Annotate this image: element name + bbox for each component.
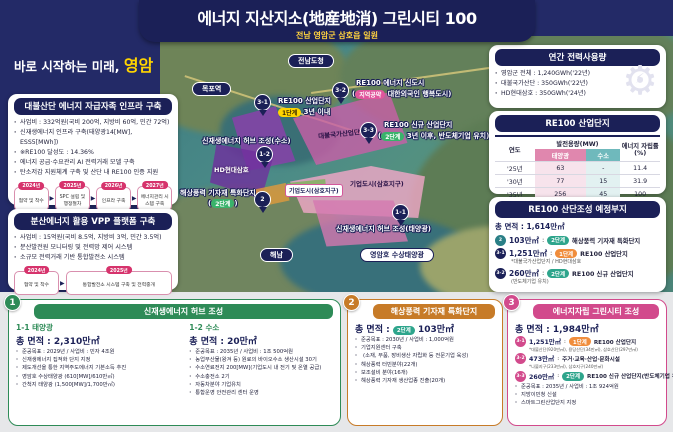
city-area: 1,251만㎡ bbox=[529, 337, 561, 346]
site-name: RE100 신규 산업단지 bbox=[572, 269, 633, 278]
bullet: 에너지 공급·수요관리 AI 전력거래 모델 구축 bbox=[14, 158, 172, 168]
tagline-text: 바로 시작하는 미래, bbox=[14, 59, 124, 74]
col-hydrogen: 수소 bbox=[586, 149, 620, 162]
title-bar: 에너지 지산지소(地産地消) 그린시티 100 전남 영암군 삼호읍 일원 bbox=[139, 0, 535, 42]
map-pill-lake-solar: 영암호 수상태양광 bbox=[360, 248, 434, 262]
table-row: '30년 77 15 31.9 bbox=[495, 175, 660, 188]
stage-tag: 1단계 bbox=[555, 249, 577, 258]
timeline-year-badge: 2027년 bbox=[142, 181, 168, 189]
pin-3-1-line2: 3년 이내 bbox=[304, 108, 331, 116]
map-pin-2-label2: (2단계) bbox=[208, 199, 238, 208]
cell-rate: 31.9 bbox=[620, 175, 660, 188]
city-item: 3-3 260만㎡ : 2단계 RE100 신규 산업단지(반도체기업 유치) bbox=[515, 371, 659, 382]
panel-number-badge: 2 bbox=[343, 294, 360, 311]
page-title: 에너지 지산지소(地産地消) 그린시티 100 bbox=[139, 5, 535, 29]
bullet: 통합운영 안전관리 센터 운영 bbox=[189, 389, 333, 397]
timeline-step: 2025년 SPC 설립 및 행정절차 bbox=[55, 186, 90, 211]
city-item: 3-2 473만㎡ : 주거·교육·산업·문화시설 bbox=[515, 353, 659, 364]
site-name: 해상풍력 기자재 특화단지 bbox=[572, 236, 640, 245]
table-row: '25년 63 - 11.4 bbox=[495, 162, 660, 175]
hub-hydrogen-column: 1-2 수소 총 면적 : 20만㎡ 준공목표 : 2035년 / 사업비 : … bbox=[189, 322, 333, 397]
cell-hydrogen: - bbox=[586, 162, 620, 175]
map-pin-3-3: 3-3 bbox=[360, 122, 377, 139]
city-name: RE100 신규 산업단지(반도체기업 유치) bbox=[587, 372, 673, 380]
stage-tag: 2단계 bbox=[562, 372, 584, 381]
stage-tag: 1단계 bbox=[569, 337, 591, 346]
col-rate: 에너지 자립률(%) bbox=[620, 136, 660, 162]
bullet: 사업비 : 15억원(국비 8.5억, 지방비 3억, 민간 3.5억) bbox=[14, 233, 172, 243]
sites-total-area: 총 면적 : 1,614만㎡ bbox=[495, 221, 660, 232]
timeline-year-badge: 2025년 bbox=[60, 181, 86, 189]
panel-table-header: RE100 산업단지 bbox=[495, 115, 660, 132]
timeline: 2024년 협약 및 착수 ▶ 2025년 통합발전소 시스템 구축 및 전력중… bbox=[14, 271, 172, 295]
panel-renewable-hub: 1 신재생에너지 허브 조성 1-1 태양광 총 면적 : 2,310만㎡ 준공… bbox=[8, 299, 341, 426]
tagline: 바로 시작하는 미래, 영암 bbox=[14, 52, 184, 76]
hub-hydrogen-title: 1-2 수소 bbox=[189, 322, 333, 333]
panel-daebul-infra-bullets: 사업비 : 332억원(국비 200억, 지방비 60억, 민간 72억) 신재… bbox=[14, 118, 172, 178]
arrow-icon: ▶ bbox=[60, 280, 65, 287]
panel-vpp-platform-header: 분산에너지 활용 VPP 플랫폼 구축 bbox=[14, 213, 172, 230]
cell-year: '30년 bbox=[495, 175, 535, 188]
city-note: *나불지구(233만㎡), 삼호지구(240만㎡) bbox=[529, 364, 659, 369]
page-subtitle: 전남 영암군 삼호읍 일원 bbox=[139, 30, 535, 41]
cell-year: '25년 bbox=[495, 162, 535, 175]
site-badge: 2 bbox=[495, 235, 506, 246]
site-note: *대불국가산업단지 / HD현대삼호 bbox=[511, 259, 660, 266]
bullet: 농업부산물(왕겨 등) 원료의 바이오수소 생산시설 30기 bbox=[189, 356, 333, 364]
pin-3-1-tag: 1단계 bbox=[278, 108, 301, 117]
pin-3-1-line1: RE100 산업단지 bbox=[278, 97, 331, 105]
wind-area: 총 면적 : 2단계 103만㎡ bbox=[355, 322, 495, 335]
hub-solar-bullets: 준공목표 : 2029년 / 사업비 : 민자 4조원 신재생에너지 집적화 단… bbox=[16, 348, 181, 389]
hub-hydrogen-bullets: 준공목표 : 2035년 / 사업비 : 1조 500억원 농업부산물(왕겨 등… bbox=[189, 348, 333, 397]
bullet: 준공목표 : 2030년 / 사업비 : 1,000억원 bbox=[355, 336, 495, 344]
timeline: 2024년 협약 및 착수 ▶ 2025년 SPC 설립 및 행정절차 ▶ 20… bbox=[14, 186, 172, 211]
bullet: 수소충전소 2기 bbox=[189, 373, 333, 381]
map-pin-3-3-label: RE100 신규 산업단지 bbox=[384, 120, 452, 130]
hub-solar-column: 1-1 태양광 총 면적 : 2,310만㎡ 준공목표 : 2029년 / 사업… bbox=[16, 322, 181, 397]
city-bullets: 준공목표 : 2035년 / 사업비 : 1조 924억원 지방이민청 신설 스… bbox=[515, 383, 659, 408]
panel-number-badge: 3 bbox=[503, 294, 520, 311]
wind-bullets: 준공목표 : 2030년 / 사업비 : 1,000억원 기업지원센터 구축 (… bbox=[355, 336, 495, 385]
site-item: 3-2 260만㎡ : 2단계 RE100 신규 산업단지 bbox=[495, 268, 660, 279]
bullet: 신재생에너지 인프라 구축(태양광14[MW], ESS5[MWh]) bbox=[14, 128, 172, 148]
map-pin-3-1-label2: 1단계 3년 이내 bbox=[278, 107, 330, 117]
cell-solar: 63 bbox=[535, 162, 586, 175]
timeline-label: 통합발전소 시스템 구축 및 전력중개 bbox=[66, 271, 172, 295]
bullet: 제도개선을 통한 지역주도에너지 기본소득 추진 bbox=[16, 364, 181, 372]
pin-3-3-line1: RE100 신규 산업단지 bbox=[384, 121, 452, 129]
zone-label-corp-box: 기업도시(삼호지구) bbox=[285, 184, 343, 197]
poster: 전남도청 목포역 해남 영암호 수상태양광 대불국가산업단지 HD현대삼호 기업… bbox=[0, 0, 673, 432]
cell-solar: 77 bbox=[535, 175, 586, 188]
city-name: RE100 산업단지 bbox=[594, 338, 636, 346]
city-badge: 3-2 bbox=[515, 353, 526, 364]
bullet: 보조설비 분야(16개) bbox=[355, 369, 495, 377]
pin-3-2-line2: 대한외국인 행복도시 bbox=[388, 90, 448, 98]
bullet: 해상풍력 터빈분야(22개) bbox=[355, 361, 495, 369]
arrow-icon: ▶ bbox=[132, 195, 137, 202]
site-item: 3-1 1,251만㎡ : 1단계 RE100 산업단지 bbox=[495, 248, 660, 259]
timeline-step: 2026년 인프라 구축 bbox=[96, 187, 131, 211]
bullet: 기업지원센터 구축 bbox=[355, 344, 495, 352]
pin-3-3-tag: 2단계 bbox=[381, 132, 404, 141]
timeline-label: 협약 및 착수 bbox=[14, 187, 49, 211]
wind-area-prefix: 총 면적 : bbox=[355, 325, 393, 335]
bullet: 준공목표 : 2029년 / 사업비 : 민자 4조원 bbox=[16, 348, 181, 356]
timeline-year-badge: 2025년 bbox=[106, 266, 132, 274]
site-item: 2 103만㎡ : 2단계 해상풍력 기자재 특화단지 bbox=[495, 235, 660, 246]
arrow-icon: ▶ bbox=[50, 195, 55, 202]
map-pill-mokpo: 목포역 bbox=[192, 82, 231, 96]
site-area: 103만㎡ bbox=[509, 235, 539, 246]
hub-hydrogen-area: 총 면적 : 20만㎡ bbox=[189, 334, 333, 347]
pin-3-2-tag: 지역공약 bbox=[355, 90, 385, 99]
bullet: 영암호 수상태양광 (610[MW]/610만㎡) bbox=[16, 373, 181, 381]
panel-planned-sites: RE100 산단조성 예정부지 총 면적 : 1,614만㎡ 2 103만㎡ :… bbox=[489, 197, 666, 292]
panel-vpp-platform: 분산에너지 활용 VPP 플랫폼 구축 사업비 : 15억원(국비 8.5억, … bbox=[8, 209, 178, 290]
bullet: 자동차분야 기업유치 bbox=[189, 381, 333, 389]
stage-tag: 2단계 bbox=[547, 269, 569, 278]
bullet: 해상풍력 기자재 생산업종 진출(20개) bbox=[355, 377, 495, 385]
site-badge: 3-1 bbox=[495, 248, 506, 259]
timeline-step: 2024년 협약 및 착수 bbox=[14, 271, 59, 295]
timeline-year-badge: 2024년 bbox=[24, 266, 50, 274]
panel-vpp-bullets: 사업비 : 15억원(국비 8.5억, 지방비 3억, 민간 3.5억) 분산발… bbox=[14, 233, 172, 263]
map-pin-2-label: 해상풍력 기자재 특화단지 bbox=[180, 188, 256, 198]
site-badge: 3-2 bbox=[495, 268, 506, 279]
map-pin-3-2-label2: (지역공약 대한외국인 행복도시) bbox=[352, 89, 451, 99]
map-pin-2: 2 bbox=[254, 191, 271, 208]
col-capacity: 발전용량(MW) bbox=[535, 136, 621, 149]
hub-solar-area: 총 면적 : 2,310만㎡ bbox=[16, 334, 181, 347]
cell-rate: 11.4 bbox=[620, 162, 660, 175]
city-area: 473만㎡ bbox=[529, 354, 554, 363]
site-area: 1,251만㎡ bbox=[509, 248, 547, 259]
timeline-label: 협약 및 착수 bbox=[14, 271, 59, 295]
map-pin-3-3-label2: (2단계 3년 이후, 반도체기업 유치) bbox=[378, 131, 489, 141]
zone-label-hd: HD현대삼호 bbox=[214, 164, 249, 174]
map-pin-3-2: 3-2 bbox=[332, 82, 349, 99]
cell-hydrogen: 15 bbox=[586, 175, 620, 188]
bullet: 탄소저감 지원체계 구축 및 산단 내 RE100 인증 지원 bbox=[14, 168, 172, 178]
bullet: 간척지 태양광 (1,500[MW]/1,700만㎡) bbox=[16, 381, 181, 389]
bullet: 사업비 : 332억원(국비 200억, 지방비 60억, 민간 72억) bbox=[14, 118, 172, 128]
site-note: (반도체기업 유치) bbox=[511, 279, 660, 286]
map-pin-1-1: 1-1 bbox=[392, 204, 409, 221]
site-name: RE100 산업단지 bbox=[580, 249, 628, 258]
panel-wind-header: 해상풍력 기자재 특화단지 bbox=[373, 304, 495, 319]
map-pin-1-2-label: 신재생에너지 허브 조성(수소) bbox=[202, 136, 291, 146]
panel-hub-header: 신재생에너지 허브 조성 bbox=[34, 304, 333, 319]
wind-area-value: 103만㎡ bbox=[418, 325, 454, 335]
city-item: 3-1 1,251만㎡ : 1단계 RE100 산업단지 bbox=[515, 336, 659, 347]
city-total-area: 총 면적 : 1,984만㎡ bbox=[515, 322, 659, 335]
arrow-icon: ▶ bbox=[91, 195, 96, 202]
timeline-label: SPC 설립 및 행정절차 bbox=[55, 186, 90, 211]
pin-3-2-line1: RE100 에너지 신도시 bbox=[356, 79, 424, 87]
bullet: 소규모 전력거래 기반 통합발전소 시스템 bbox=[14, 253, 172, 263]
tagline-highlight: 영암 bbox=[124, 56, 153, 75]
bullet: 신재생에너지 집적화 단지 지정 bbox=[16, 356, 181, 364]
city-name: 주거·교육·산업·문화시설 bbox=[562, 355, 620, 363]
usage-bullets: 영암군 전체 : 1,240GWh('22년) 대불국가산단 : 350GWh(… bbox=[495, 69, 660, 99]
map-pin-1-2: 1-2 bbox=[256, 146, 273, 163]
panel-sites-header: RE100 산단조성 예정부지 bbox=[495, 201, 660, 218]
bullet: 영암군 전체 : 1,240GWh('22년) bbox=[495, 69, 660, 79]
map-pill-haenam: 해남 bbox=[260, 248, 293, 262]
bullet-sub: (소재, 부품, 장비생산 자립화 등 전문기업 육성) bbox=[355, 352, 495, 360]
bullet: 준공목표 : 2035년 / 사업비 : 1조 500억원 bbox=[189, 348, 333, 356]
timeline-year-badge: 2024년 bbox=[18, 182, 44, 190]
zone-label-corp-area: 기업도시(삼호지구) bbox=[350, 178, 404, 188]
timeline-step: 2027년 에너지관리 시스템 구축 bbox=[137, 186, 172, 211]
panel-daebul-infra-header: 대불산단 에너지 자급자족 인프라 구축 bbox=[14, 98, 172, 115]
panel-offshore-wind: 2 해상풍력 기자재 특화단지 총 면적 : 2단계 103만㎡ 준공목표 : … bbox=[347, 299, 503, 426]
bullet: 스마트그린산업단지 지정 bbox=[515, 399, 659, 407]
panel-number-badge: 1 bbox=[4, 294, 21, 311]
bullet: 준공목표 : 2035년 / 사업비 : 1조 924억원 bbox=[515, 383, 659, 391]
bullet: 수소연료전지 200[MW](기업도시 내 전기 및 온열 공급) bbox=[189, 364, 333, 372]
map-pill-jeonnam: 전남도청 bbox=[288, 54, 334, 68]
panel-city-header: 에너지자립 그린시티 조성 bbox=[533, 304, 659, 319]
bullet: 대불국가산단 : 350GWh('22년) bbox=[495, 79, 660, 89]
city-badge: 3-1 bbox=[515, 336, 526, 347]
bullet: HD현대삼호 : 350GWh('24년) bbox=[495, 89, 660, 99]
col-year: 연도 bbox=[495, 136, 535, 162]
bullet: 분산발전원 모니터링 및 전력망 제어 시스템 bbox=[14, 243, 172, 253]
map-pin-3-1: 3-1 bbox=[254, 94, 271, 111]
city-note: *대불산단(920만㎡), 용당산단(34만㎡), 삼호산단(297만㎡) bbox=[529, 347, 659, 352]
col-solar: 태양광 bbox=[535, 149, 586, 162]
bullet: ※RE100 달성도 : 14.36% bbox=[14, 148, 172, 158]
timeline-label: 인프라 구축 bbox=[96, 187, 131, 211]
panel-daebul-infra: 대불산단 에너지 자급자족 인프라 구축 사업비 : 332억원(국비 200억… bbox=[8, 94, 178, 205]
bullet: 지방이민청 신설 bbox=[515, 391, 659, 399]
city-area: 260만㎡ bbox=[529, 372, 554, 381]
pin-3-3-line2: 3년 이후, 반도체기업 유치 bbox=[407, 132, 486, 140]
stage-tag: 2단계 bbox=[393, 326, 415, 335]
timeline-label: 에너지관리 시스템 구축 bbox=[137, 186, 172, 211]
stage-tag: 2단계 bbox=[547, 236, 569, 245]
hub-solar-title: 1-1 태양광 bbox=[16, 322, 181, 333]
timeline-step: 2024년 협약 및 착수 bbox=[14, 187, 49, 211]
panel-annual-power-usage: 연간 전력사용량 ⚙⚡ 영암군 전체 : 1,240GWh('22년) 대불국가… bbox=[489, 45, 666, 108]
timeline-year-badge: 2026년 bbox=[101, 182, 127, 190]
map-pin-1-1-label: 신재생에너지 허브 조성(태양광) bbox=[336, 224, 431, 234]
panel-green-city: 3 에너지자립 그린시티 조성 총 면적 : 1,984만㎡ 3-1 1,251… bbox=[507, 299, 667, 426]
map-pin-3-1-label: RE100 산업단지 bbox=[278, 96, 331, 106]
city-badge: 3-3 bbox=[515, 371, 526, 382]
pin-2-tag: 2단계 bbox=[211, 199, 234, 208]
site-area: 260만㎡ bbox=[509, 268, 539, 279]
timeline-step: 2025년 통합발전소 시스템 구축 및 전력중개 bbox=[66, 271, 172, 295]
map-pin-3-2-label: RE100 에너지 신도시 bbox=[356, 78, 424, 88]
panel-re100-table: RE100 산업단지 연도 발전용량(MW) 에너지 자립률(%) 태양광 수소… bbox=[489, 111, 666, 194]
